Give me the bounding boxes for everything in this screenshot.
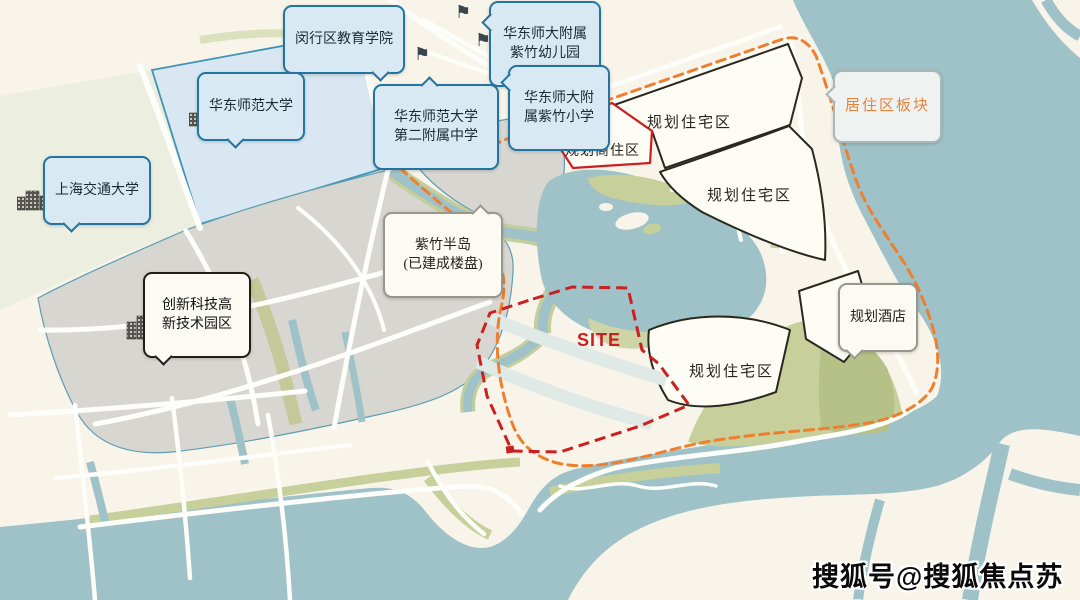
label-ecnu-second-high-school: 华东师范大学 第二附属中学 bbox=[373, 84, 499, 170]
lake-island bbox=[599, 203, 613, 211]
small-red-building bbox=[506, 445, 515, 453]
label-planned-residential-top: 规划住宅区 bbox=[647, 111, 732, 132]
label-planned-hotel: 规划酒店 bbox=[838, 283, 918, 352]
label-sjtu-university: 上海交通大学 bbox=[43, 156, 151, 225]
label-text: 规划酒店 bbox=[850, 310, 906, 325]
label-text: 居住区板块 bbox=[845, 98, 930, 114]
label-minhang-education-institute: 闵行区教育学院 bbox=[283, 5, 405, 74]
label-text: 华东师大附属 紫竹幼儿园 bbox=[503, 27, 587, 62]
label-planned-residential-right: 规划住宅区 bbox=[707, 184, 792, 205]
label-text: 紫竹半岛 (已建成楼盘) bbox=[403, 238, 482, 273]
label-text: 闵行区教育学院 bbox=[295, 32, 393, 47]
site-label: SITE bbox=[577, 330, 621, 351]
label-text: 华东师范大学 第二附属中学 bbox=[394, 110, 478, 145]
label-text: 华东师大附 属紫竹小学 bbox=[524, 91, 594, 126]
label-residential-district-block: 居住区板块 bbox=[833, 70, 942, 143]
label-innovation-tech-park: 创新科技高 新技术园区 bbox=[143, 272, 251, 358]
flag-icon: ⚑ bbox=[455, 4, 471, 22]
label-zizhu-peninsula: 紫竹半岛 (已建成楼盘) bbox=[383, 212, 503, 298]
site-plan-map: ⚑ ⚑ ⚑ ⚑ 闵行区教育学院 华东师大附属 紫竹幼儿园 华东师范大学 华东师范… bbox=[0, 0, 1080, 600]
label-ecnu-primary-school: 华东师大附 属紫竹小学 bbox=[508, 65, 610, 151]
label-text: 上海交通大学 bbox=[55, 183, 139, 198]
label-text: 创新科技高 新技术园区 bbox=[162, 298, 232, 333]
watermark: 搜狐号@搜狐焦点苏州站 bbox=[812, 555, 1080, 600]
label-ecnu-university: 华东师范大学 bbox=[197, 72, 305, 141]
flag-icon: ⚑ bbox=[414, 46, 430, 64]
label-planned-residential-bottom: 规划住宅区 bbox=[689, 360, 774, 381]
label-text: 华东师范大学 bbox=[209, 99, 293, 114]
